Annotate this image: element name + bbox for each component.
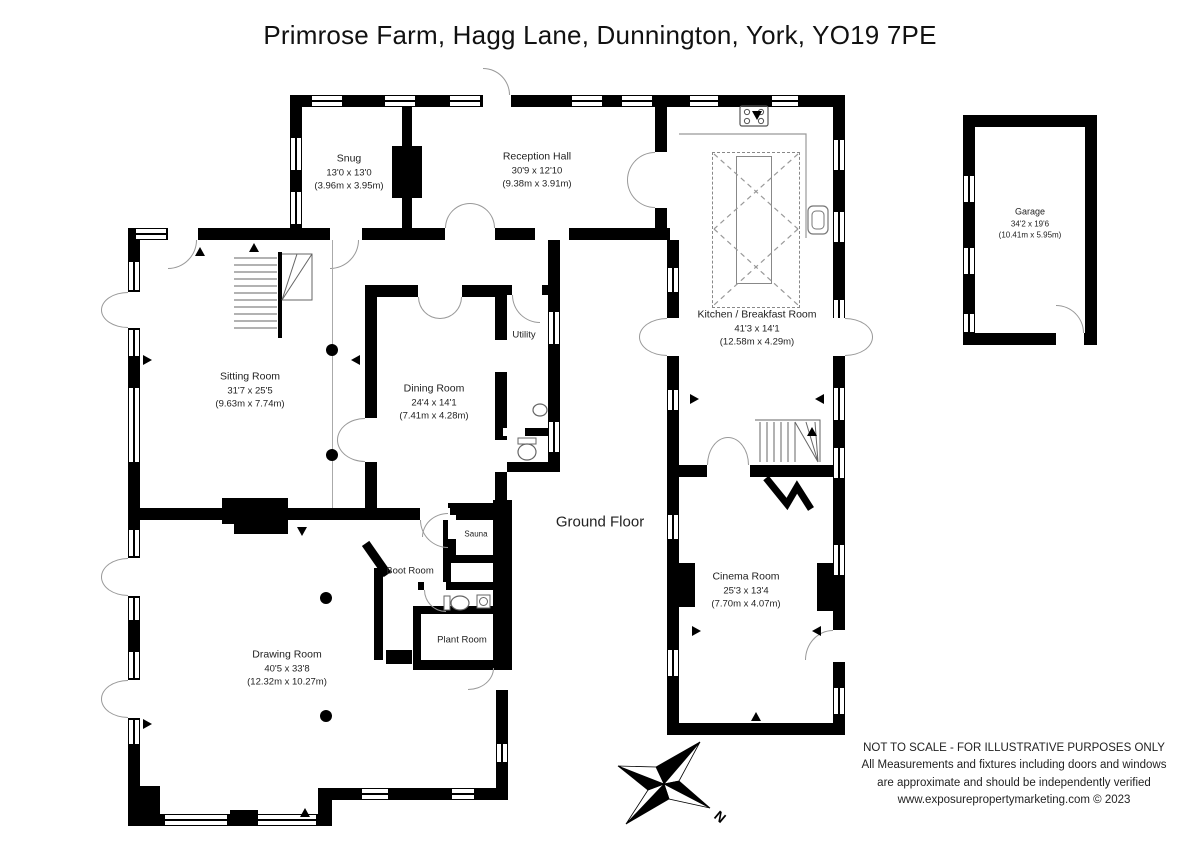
- wall: [750, 465, 845, 477]
- wall: [413, 660, 512, 670]
- window: [667, 515, 679, 539]
- door-opening: [128, 292, 140, 328]
- door-arc: [845, 318, 873, 337]
- door-arc: [845, 337, 873, 356]
- column: [320, 592, 332, 604]
- disclaimer-line: NOT TO SCALE - FOR ILLUSTRATIVE PURPOSES…: [855, 740, 1173, 757]
- door-arc: [468, 668, 494, 690]
- door-arc: [707, 437, 728, 465]
- window: [128, 330, 140, 356]
- door-opening: [330, 228, 362, 240]
- window: [496, 744, 508, 762]
- window: [258, 814, 316, 826]
- stair-wall: [278, 252, 282, 338]
- window: [833, 688, 845, 714]
- door-opening: [445, 228, 495, 240]
- door-arc: [101, 577, 128, 596]
- disclaimer-line: www.exposurepropertymarketing.com © 2023: [855, 792, 1173, 809]
- window: [548, 422, 560, 452]
- entry-arrow: [143, 719, 152, 729]
- room-label-boot-room: Boot Room: [386, 564, 434, 577]
- chimney-breast: [392, 146, 422, 198]
- door-opening: [495, 340, 507, 372]
- staircase-treads: [234, 258, 277, 328]
- wall: [365, 285, 377, 520]
- door-opening: [833, 318, 845, 356]
- door-opening: [503, 428, 525, 436]
- garage-wall: [1085, 115, 1097, 345]
- floorplan-page: Primrose Farm, Hagg Lane, Dunnington, Yo…: [0, 0, 1200, 848]
- door-arc: [168, 240, 197, 269]
- sink-icon: [808, 206, 828, 234]
- hob-ring-icon: [758, 109, 763, 114]
- door-opening: [128, 680, 140, 718]
- door-opening: [512, 285, 542, 295]
- door-opening: [365, 418, 377, 462]
- door-opening: [495, 440, 507, 472]
- window: [667, 268, 679, 292]
- entry-arrow: [351, 355, 360, 365]
- window: [452, 788, 474, 800]
- column: [320, 710, 332, 722]
- entry-arrow: [195, 247, 205, 256]
- room-label-cinema-room: Cinema Room 25'3 x 13'4 (7.70m x 4.07m): [711, 569, 780, 610]
- door-arc: [470, 203, 495, 228]
- window: [312, 95, 342, 107]
- door-arc: [418, 297, 440, 319]
- compass-rose: N: [618, 742, 729, 826]
- window: [667, 390, 679, 410]
- door-arc: [330, 240, 359, 269]
- window: [290, 138, 302, 170]
- door-arc: [337, 440, 365, 462]
- entry-arrow: [690, 394, 699, 404]
- open-plan-divider-line: [332, 240, 333, 508]
- fireplace-hearth: [234, 520, 288, 534]
- window: [128, 388, 140, 462]
- wall: [667, 723, 845, 735]
- door-arc: [728, 437, 749, 465]
- compass-point: [664, 784, 710, 808]
- window: [128, 720, 140, 744]
- wall: [448, 555, 500, 563]
- wall: [230, 810, 258, 826]
- compass-point: [618, 766, 664, 790]
- wall: [500, 462, 560, 472]
- door-opening: [535, 228, 569, 240]
- garage-wall: [963, 115, 975, 345]
- room-label-reception-hall: Reception Hall 30'9 x 12'10 (9.38m x 3.9…: [502, 149, 571, 190]
- door-arc: [440, 297, 462, 319]
- wall: [290, 95, 670, 107]
- door-arc: [627, 180, 655, 208]
- window: [128, 530, 140, 556]
- room-label-sauna: Sauna: [464, 528, 487, 539]
- hob-icon: [740, 106, 768, 126]
- wall: [413, 606, 493, 614]
- window: [165, 814, 227, 826]
- disclaimer-text: NOT TO SCALE - FOR ILLUSTRATIVE PURPOSES…: [855, 740, 1173, 809]
- window: [622, 95, 652, 107]
- door-arc: [639, 337, 667, 356]
- window: [572, 95, 602, 107]
- wall-zigzag: [766, 478, 811, 509]
- door-arc: [101, 680, 128, 699]
- room-label-kitchen: Kitchen / Breakfast Room 41'3 x 14'1 (12…: [697, 307, 816, 348]
- toilet-cistern-icon: [518, 438, 536, 444]
- window: [963, 248, 975, 274]
- door-arc: [1056, 305, 1084, 333]
- door-opening: [655, 152, 667, 208]
- staircase-winder: [755, 420, 820, 462]
- window: [833, 212, 845, 242]
- staircase-winder: [282, 254, 312, 300]
- entry-arrow: [752, 111, 762, 120]
- entry-arrow: [692, 626, 701, 636]
- door-arc: [483, 68, 510, 95]
- disclaimer-line: All Measurements and fixtures including …: [855, 757, 1173, 774]
- compass-north-label: N: [711, 807, 729, 826]
- wall: [679, 465, 707, 477]
- door-opening: [833, 630, 845, 662]
- floor-label: Ground Floor: [556, 514, 644, 531]
- room-label-garage: Garage 34'2 x 19'6 (10.41m x 5.95m): [999, 206, 1062, 241]
- compass-point: [664, 781, 710, 808]
- staircase-treads: [760, 422, 795, 462]
- door-opening: [424, 582, 446, 590]
- compass-point: [626, 784, 669, 824]
- column: [326, 449, 338, 461]
- window: [385, 95, 415, 107]
- basin-bowl-icon: [480, 598, 488, 606]
- door-arc: [639, 318, 667, 337]
- disclaimer-line: are approximate and should be independen…: [855, 775, 1173, 792]
- door-arc: [512, 295, 540, 323]
- wall: [493, 500, 512, 665]
- room-label-snug: Snug 13'0 x 13'0 (3.96m x 3.95m): [314, 151, 383, 192]
- wall: [386, 650, 412, 664]
- sink-bowl-icon: [812, 211, 824, 229]
- wall-pillar: [817, 563, 833, 611]
- compass-point: [618, 766, 664, 784]
- window: [833, 388, 845, 420]
- door-opening: [483, 95, 511, 107]
- garage-wall: [963, 115, 1097, 127]
- window: [128, 262, 140, 290]
- entry-arrow: [297, 527, 307, 536]
- door-arc: [337, 418, 365, 440]
- door-arc: [101, 292, 128, 310]
- room-label-utility: Utility: [512, 328, 535, 341]
- room-label-drawing-room: Drawing Room 40'5 x 33'8 (12.32m x 10.27…: [247, 647, 327, 688]
- room-label-dining-room: Dining Room 24'4 x 14'1 (7.41m x 4.28m): [399, 381, 468, 422]
- wall: [495, 285, 507, 520]
- column: [326, 344, 338, 356]
- window: [290, 192, 302, 224]
- door-arc: [627, 152, 655, 180]
- hob-ring-icon: [744, 109, 749, 114]
- compass-point: [656, 742, 700, 784]
- window: [963, 314, 975, 332]
- window: [667, 650, 679, 676]
- door-opening: [128, 558, 140, 596]
- entry-arrow: [143, 355, 152, 365]
- door-arc: [805, 630, 833, 660]
- plan-detail-overlay: N: [0, 0, 1200, 848]
- compass-point: [664, 742, 700, 784]
- window: [772, 95, 798, 107]
- door-opening: [1056, 333, 1084, 345]
- door-opening: [448, 515, 456, 539]
- door-arc: [101, 558, 128, 577]
- window: [548, 312, 560, 344]
- wall: [374, 568, 383, 660]
- window: [833, 545, 845, 575]
- window: [128, 652, 140, 678]
- hob-ring-icon: [744, 118, 749, 123]
- door-opening: [168, 228, 198, 240]
- window: [963, 176, 975, 202]
- window: [128, 598, 140, 620]
- window: [690, 95, 718, 107]
- window: [833, 448, 845, 478]
- compass-point: [626, 784, 664, 824]
- window: [450, 95, 480, 107]
- stair-arrow: [249, 243, 259, 252]
- toilet-icon: [518, 444, 536, 460]
- wall: [413, 606, 421, 668]
- room-label-plant-room: Plant Room: [437, 633, 487, 646]
- hob-ring-icon: [758, 118, 763, 123]
- stair-arrow: [807, 427, 817, 436]
- door-opening: [667, 318, 679, 356]
- window: [362, 788, 388, 800]
- window: [136, 228, 166, 240]
- entry-arrow: [751, 712, 761, 721]
- entry-arrow: [815, 394, 824, 404]
- door-arc: [101, 310, 128, 328]
- wall-pillar: [679, 563, 695, 607]
- door-arc: [101, 699, 128, 718]
- page-title: Primrose Farm, Hagg Lane, Dunnington, Yo…: [0, 20, 1200, 51]
- door-arc: [445, 203, 470, 228]
- window: [833, 140, 845, 170]
- room-label-sitting-room: Sitting Room 31'7 x 25'5 (9.63m x 7.74m): [215, 369, 284, 410]
- kitchen-island: [736, 156, 772, 284]
- door-opening: [418, 285, 462, 297]
- basin-icon: [533, 404, 547, 416]
- wall: [330, 788, 508, 800]
